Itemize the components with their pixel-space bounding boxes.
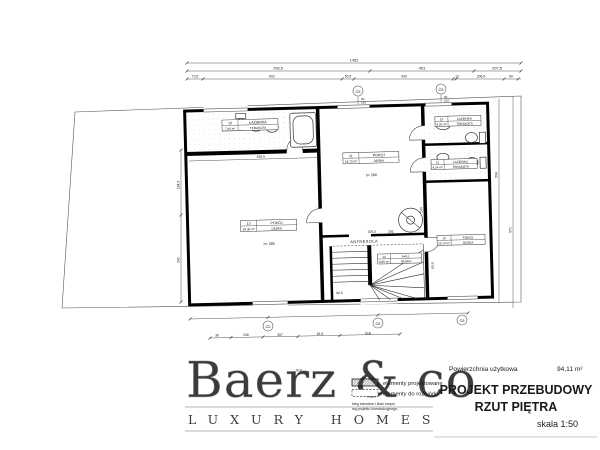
- dim-text: 70,5: [192, 74, 199, 78]
- room-finish: TERAKOTA: [456, 121, 473, 125]
- room-finish: TERAKOTA: [452, 165, 469, 169]
- room-area: 15,24 m²: [438, 241, 450, 245]
- window-marker-label: O3: [438, 88, 443, 92]
- antresola-dashed-line: [333, 244, 423, 246]
- room-name: POKÓJ: [373, 152, 386, 157]
- room-no: 14: [382, 255, 386, 259]
- dim-text: 518: [365, 331, 371, 335]
- room-no: 12: [436, 160, 440, 164]
- window-marker-label: O2: [265, 325, 270, 329]
- room-area: 4,20 m²: [436, 122, 447, 126]
- room-label-room11: 11 POKÓJ 18,70 m² DESKA h= 280: [343, 151, 400, 177]
- legend-demolition-label: elementy do rozbiórki: [383, 392, 438, 398]
- floor-plan: 16 ŁAZIENKA 7,04 m² TERAKOTA 13 POKÓJ 34…: [185, 99, 493, 309]
- room-finish: DESKA: [463, 240, 475, 244]
- window-marker-label: O3: [459, 319, 464, 323]
- interior-dimensions: 435,5 230 205,5 282 90,5 60,5: [189, 150, 436, 299]
- window-bottom-left: [253, 298, 288, 307]
- room-area: 18,70 m²: [345, 159, 357, 163]
- area-label: Powierzchnia użytkowa: [449, 366, 518, 373]
- room-area: 7,04 m²: [225, 127, 236, 131]
- area-value: 94,11 m²: [557, 366, 583, 373]
- dim-text: 602: [269, 74, 275, 78]
- dim-text: 206,5: [477, 74, 486, 78]
- watermark-tagline: LUXURY HOMES: [188, 412, 442, 427]
- room-area: 4,24 m²: [432, 165, 443, 169]
- dim-text: 246: [243, 333, 249, 337]
- room-no: 10: [442, 236, 446, 240]
- dim-text: 60,5: [431, 262, 435, 269]
- room-name: HALL: [402, 254, 410, 258]
- antresola-label: ANTRESOLA: [350, 239, 378, 245]
- dim-text: 1452: [350, 57, 360, 62]
- room-height: h= 280: [264, 242, 275, 246]
- room-label-room13: 13 POKÓJ 34,30 m² DESKA h= 280: [241, 219, 298, 246]
- dim-text: 50,5: [345, 74, 352, 78]
- dim-text: 30: [215, 334, 219, 338]
- room-height: h= 280: [366, 173, 377, 177]
- window-bottom-mid: [361, 296, 398, 305]
- legend-swatch-projected: [352, 379, 378, 386]
- room-finish: DESKA: [374, 159, 386, 163]
- room-no: 13: [247, 222, 251, 226]
- room-name: ŁAZIENKA: [453, 160, 469, 164]
- legend-projected-label: elementy projektowane: [383, 381, 443, 387]
- watermark-brand: Baerz & co: [186, 351, 477, 409]
- room-area: 34,30 m²: [243, 227, 255, 231]
- door-bath12: [410, 158, 424, 172]
- window-marker-label: O2: [375, 322, 380, 326]
- dim-text: 164,5: [177, 181, 181, 190]
- dim-text: 435,5: [257, 155, 266, 159]
- legend-note-1: bieg schodów i ilość stopni: [352, 402, 395, 406]
- room-name: POKÓJ: [463, 235, 474, 240]
- window-bottom-right: [448, 293, 478, 302]
- drawing-sheet: Baerz & co LUXURY HOMES: [0, 0, 600, 450]
- marker-sub: 150: [444, 99, 449, 103]
- floor-plan-drawing: Baerz & co LUXURY HOMES: [0, 0, 600, 450]
- room-name: ŁAZIENKA: [249, 120, 267, 124]
- legend-note-2: wg projektu konstrukcyjnego: [352, 407, 397, 411]
- window-marker-label: O3: [355, 90, 360, 94]
- room-finish: DESKA: [401, 259, 413, 263]
- room-finish: TERAKOTA: [250, 126, 267, 130]
- room-label-hall14: 14 HALL 9,85 m² DESKA: [377, 253, 421, 264]
- dim-text: 205,5: [368, 230, 377, 234]
- dim-text: 12: [455, 74, 459, 78]
- room-no: 16: [228, 121, 232, 125]
- project-title-line2: RZUT PIĘTRA: [475, 400, 558, 414]
- room-label-bath15: 15 ŁAZIENKA 4,20 m² TERAKOTA: [435, 115, 481, 126]
- window-top-left: [204, 105, 248, 114]
- room-no: 15: [440, 117, 444, 121]
- dim-text: 230: [419, 207, 423, 213]
- room-area: 9,85 m²: [379, 260, 390, 264]
- bathtub-icon: [290, 113, 317, 148]
- stairs: [331, 244, 425, 301]
- dim-text: 818: [296, 369, 302, 373]
- room-finish: DESKA: [271, 226, 283, 230]
- room-label-bath12: 12 ŁAZIENKA 4,24 m² TERAKOTA: [431, 158, 477, 169]
- top-dimensions: 1452 793,5 451 207,5 70,5 602 50,5 433 1…: [186, 57, 523, 80]
- room-name: ŁAZIENKA: [457, 116, 473, 120]
- dim-text: 207,5: [492, 65, 503, 70]
- scale-label: skala 1:50: [537, 419, 578, 429]
- dim-text: 60: [509, 74, 513, 78]
- legend-swatch-demolition: [352, 390, 378, 397]
- dim-text: 570: [509, 227, 513, 233]
- dim-text: 451: [419, 65, 426, 70]
- room-label-bath16: 16 ŁAZIENKA 7,04 m² TERAKOTA: [222, 119, 278, 131]
- door-room13: [306, 209, 320, 223]
- dim-text: 61,5: [317, 332, 324, 336]
- dim-text: 240: [177, 257, 181, 263]
- room-name: POKÓJ: [270, 220, 283, 225]
- dim-text: 282: [388, 230, 394, 234]
- dim-text: 90,5: [336, 291, 343, 295]
- marker-sub: 150: [361, 101, 366, 105]
- dim-text: 433: [401, 74, 407, 78]
- door-bath15: [409, 126, 423, 140]
- dim-text: 594: [495, 172, 499, 178]
- project-title-line1: PROJEKT PRZEBUDOWY: [440, 383, 593, 397]
- dim-text: 793,5: [273, 65, 284, 70]
- room-label-room10: 10 POKÓJ 15,24 m² DESKA: [437, 234, 485, 245]
- room-no: 11: [349, 154, 353, 158]
- dim-text: 307: [277, 333, 283, 337]
